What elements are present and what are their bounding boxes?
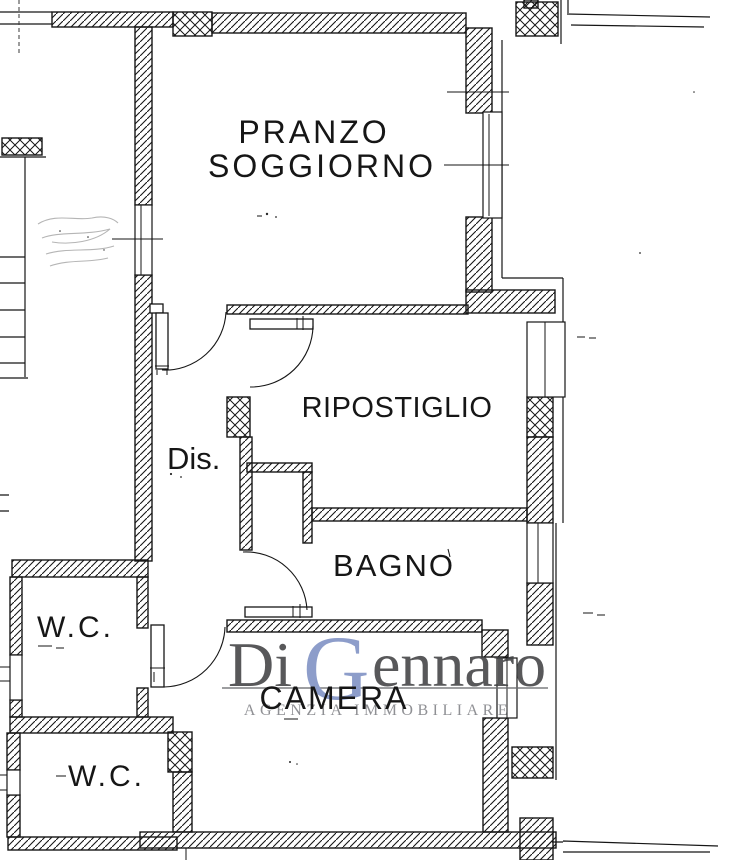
room-label-wc-lower: W.C. (68, 760, 145, 793)
window-pranzo-left (112, 205, 163, 275)
door-swing-arc (243, 552, 307, 610)
balcony-top-outline (561, 0, 710, 44)
stair-treads (0, 157, 46, 511)
column-camera-left (168, 732, 192, 772)
room-label-wc-upper: W.C. (37, 611, 114, 644)
room-label-ripostiglio: RIPOSTIGLIO (302, 392, 493, 424)
door-swing-arc (250, 326, 313, 387)
column-top-right (516, 2, 558, 36)
door-ripostiglio (250, 316, 313, 387)
room-label-camera: CAMERA (260, 680, 409, 716)
stair-landing-block (2, 138, 42, 155)
window-wc-upper (0, 655, 22, 700)
door-camera (150, 625, 225, 687)
window-bagno (527, 523, 553, 583)
room-label-bagno: BAGNO (333, 548, 455, 583)
stairs (0, 138, 46, 511)
window-ripostiglio (527, 322, 596, 397)
column-top-left (173, 12, 212, 36)
door-bagno (243, 552, 312, 618)
door-swing-arc (162, 312, 226, 370)
balcony-bottom-outline (552, 841, 718, 852)
floor-plan-page: Di G ennaro AGENZIA IMMOBILIARE PRANZO S… (0, 0, 742, 860)
scan-smudge (38, 217, 118, 266)
floor-plan: Di G ennaro AGENZIA IMMOBILIARE PRANZO S… (0, 0, 742, 860)
column-camera-right (512, 747, 553, 778)
column-ripostiglio-window (527, 397, 553, 437)
window-wc-lower (0, 770, 20, 795)
door-swing-arc (164, 627, 225, 687)
column-disimpegno (227, 397, 250, 437)
door-jamb-stub (150, 304, 163, 313)
door-pranzo-disimpegno (155, 312, 226, 375)
room-label-soggiorno: SOGGIORNO (208, 148, 436, 184)
room-label-disimpegno: Dis. (167, 441, 220, 476)
room-label-pranzo: PRANZO (238, 114, 389, 150)
